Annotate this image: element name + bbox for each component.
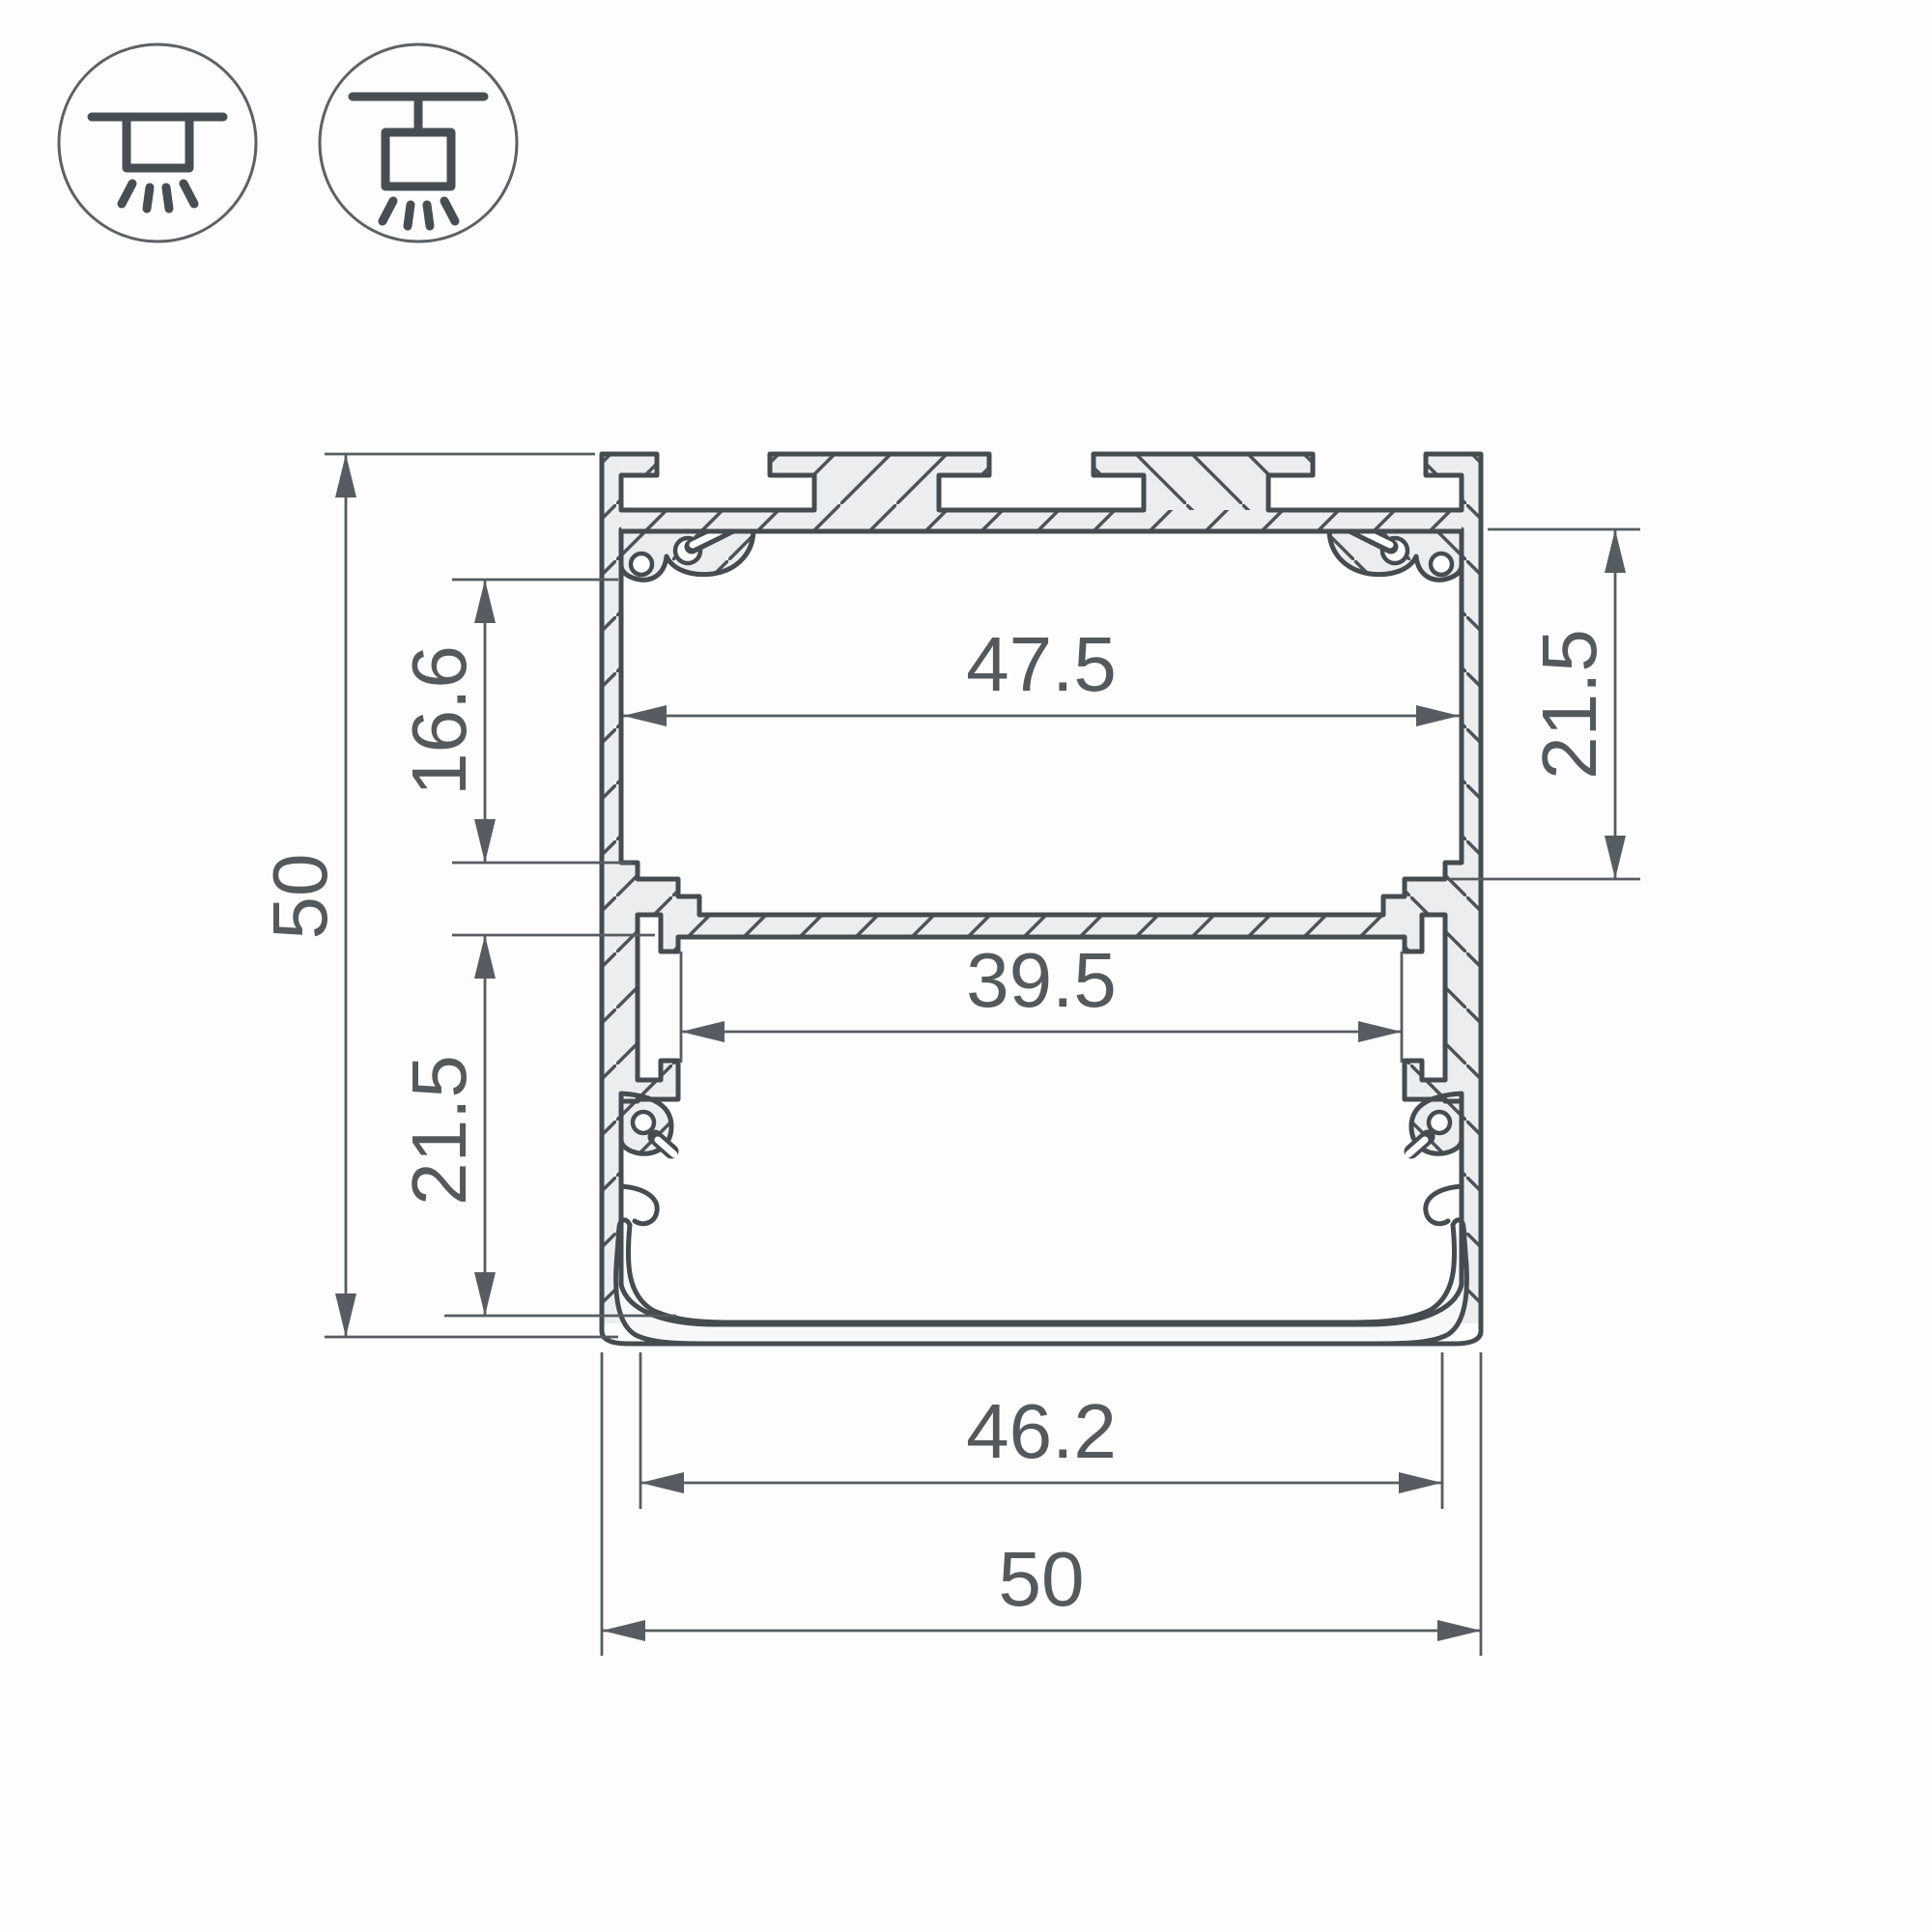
dimension-upper-inner-width: 47.5 (623, 621, 1460, 726)
lamp-body (127, 117, 189, 168)
dimension-label: 16.6 (396, 645, 482, 796)
technical-drawing-page: 50 16.6 21.5 47.5 (0, 0, 1932, 1932)
lamp-body (385, 132, 451, 186)
top-wall-base (621, 510, 1462, 531)
dimension-label: 21.5 (1526, 629, 1612, 780)
profile-right-half-material (1094, 454, 1481, 1323)
profile-left-half-material (602, 454, 989, 1323)
profile-cross-section (602, 454, 1481, 1344)
pendant-mount-icon (320, 44, 517, 241)
dimension-mid-opening-width: 39.5 (681, 937, 1402, 1063)
dimension-bottom-opening-width: 46.2 (640, 1352, 1442, 1509)
light-rays (122, 184, 194, 209)
dimensions: 50 16.6 21.5 47.5 (257, 454, 1640, 1656)
dimension-label: 21.5 (396, 1055, 482, 1206)
dimension-upper-chamber-height: 16.6 (396, 580, 632, 863)
mounting-icons (59, 44, 517, 241)
dimension-label: 50 (999, 1536, 1085, 1622)
icon-circle (59, 44, 256, 241)
dimension-label: 46.2 (966, 1388, 1117, 1474)
dimension-label: 47.5 (966, 621, 1117, 707)
light-rays (383, 201, 455, 226)
dimension-label: 50 (257, 854, 343, 940)
middle-shelf (678, 915, 1405, 937)
surface-mount-icon (59, 44, 256, 241)
profile-drawing-canvas: 50 16.6 21.5 47.5 (0, 0, 1932, 1932)
dimension-label: 39.5 (966, 937, 1117, 1023)
icon-circle (320, 44, 517, 241)
upper-chamber-outline (621, 531, 1462, 915)
profile-outer-outline (602, 454, 1481, 1344)
